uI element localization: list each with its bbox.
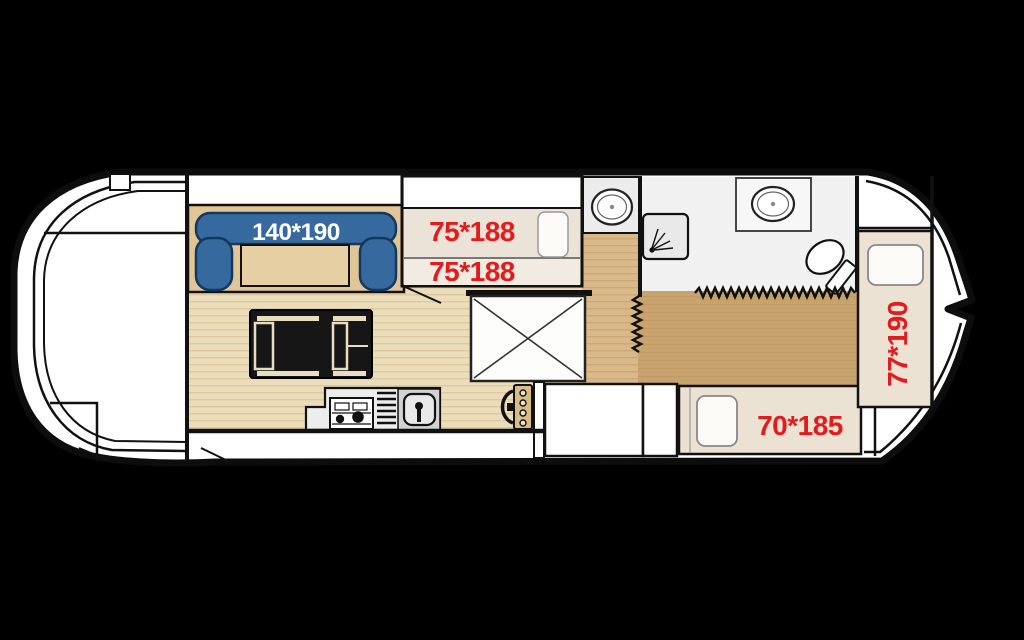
chair-detail xyxy=(333,371,366,376)
cabin-floor xyxy=(638,291,859,388)
bunk-lower-dimension-label: 75*188 xyxy=(429,256,515,287)
bunk-pillow xyxy=(538,212,568,257)
bunk-overhead-locker xyxy=(404,178,580,207)
bow-bed-pillow xyxy=(868,245,923,285)
sofa-bed-dimension-label: 140*190 xyxy=(252,219,340,246)
stern-step-top xyxy=(110,174,130,190)
lounge-chair xyxy=(250,310,372,378)
bow-bed-dimension-label: 77*190 xyxy=(882,301,913,387)
coffee-table xyxy=(241,245,349,286)
drop-leaf-table xyxy=(466,290,592,381)
bunk-upper-dimension-label: 75*188 xyxy=(429,216,515,247)
chair-detail xyxy=(333,316,366,321)
galley-sink xyxy=(398,389,440,430)
chair-detail xyxy=(257,371,319,376)
galley-washbasin xyxy=(583,177,640,233)
shower xyxy=(643,214,688,259)
floorplan-canvas: 140*190 75*188 75*188 70*185 77*190 xyxy=(0,0,1024,640)
storage-cabinet-small xyxy=(534,382,544,458)
storage-cabinet-large xyxy=(545,384,643,456)
kitchen-counter xyxy=(306,388,440,430)
storage-cabinet-mid xyxy=(643,384,677,456)
cabin-bed-dimension-label: 70*185 xyxy=(757,410,843,441)
cabin-bed-pillow xyxy=(697,396,737,446)
chair-detail xyxy=(257,316,319,321)
chair-detail xyxy=(333,323,347,369)
saloon-top-shelf xyxy=(187,177,403,205)
floorplan-stage: 140*190 75*188 75*188 70*185 77*190 xyxy=(0,0,1024,640)
chair-detail xyxy=(255,323,273,369)
galley-stove xyxy=(330,398,373,429)
sofa-right-cushion xyxy=(360,238,396,290)
sofa-left-cushion xyxy=(196,238,232,290)
bathroom-washbasin xyxy=(736,178,811,231)
